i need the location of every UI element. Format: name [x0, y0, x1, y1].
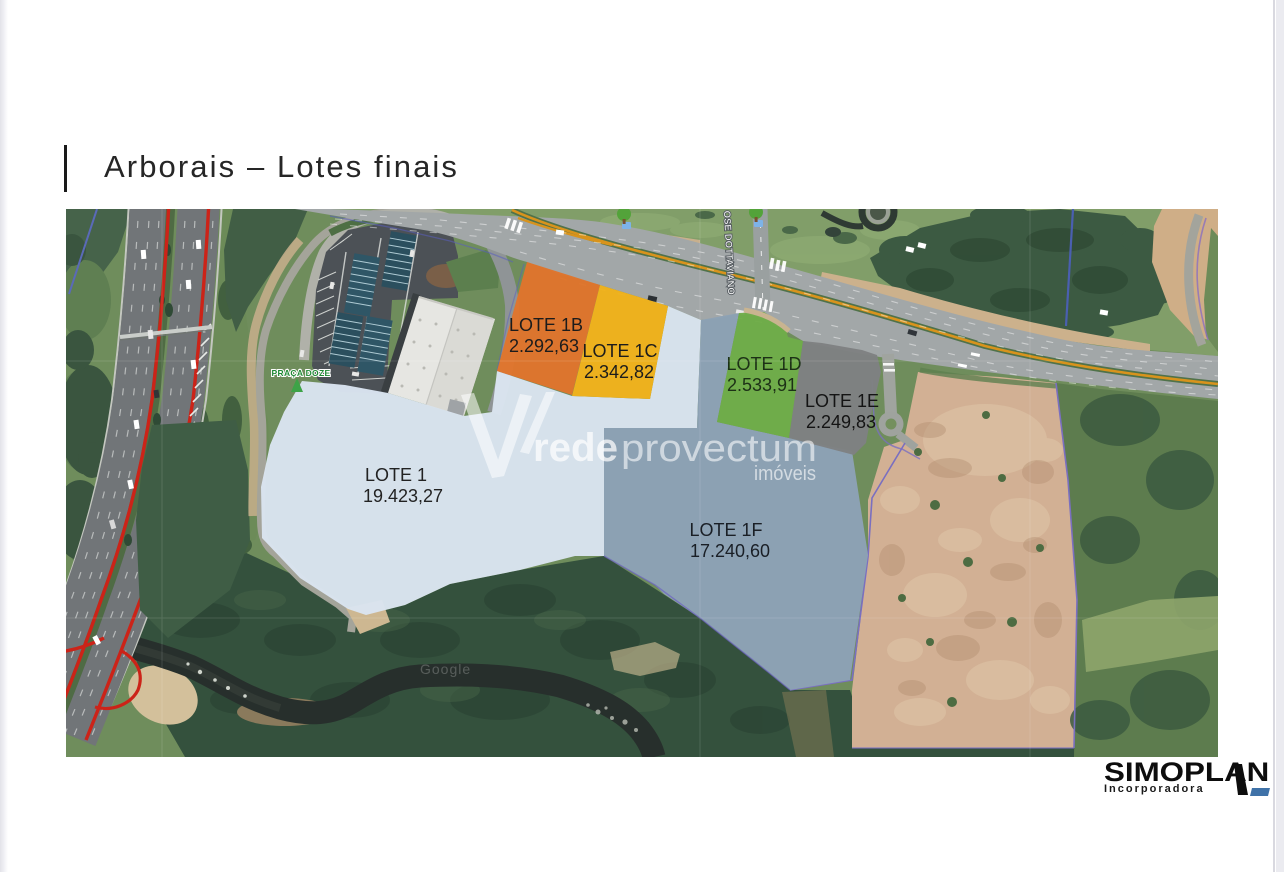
svg-text:19.423,27: 19.423,27	[363, 486, 443, 506]
svg-text:Google: Google	[420, 661, 471, 677]
svg-text:PRAÇA DOZE: PRAÇA DOZE	[272, 368, 331, 378]
svg-text:LOTE 1D: LOTE 1D	[726, 354, 801, 374]
svg-text:LOTE 1C: LOTE 1C	[582, 341, 657, 361]
svg-text:2.292,63: 2.292,63	[509, 336, 579, 356]
svg-text:LOTE 1B: LOTE 1B	[509, 315, 583, 335]
svg-text:2.342,82: 2.342,82	[584, 362, 654, 382]
svg-text:LOTE 1E: LOTE 1E	[805, 391, 879, 411]
svg-text:imóveis: imóveis	[754, 463, 816, 485]
svg-text:LOTE 1: LOTE 1	[365, 465, 427, 485]
svg-text:2.533,91: 2.533,91	[727, 375, 797, 395]
svg-text:17.240,60: 17.240,60	[690, 541, 770, 561]
svg-text:rede: rede	[533, 426, 618, 470]
